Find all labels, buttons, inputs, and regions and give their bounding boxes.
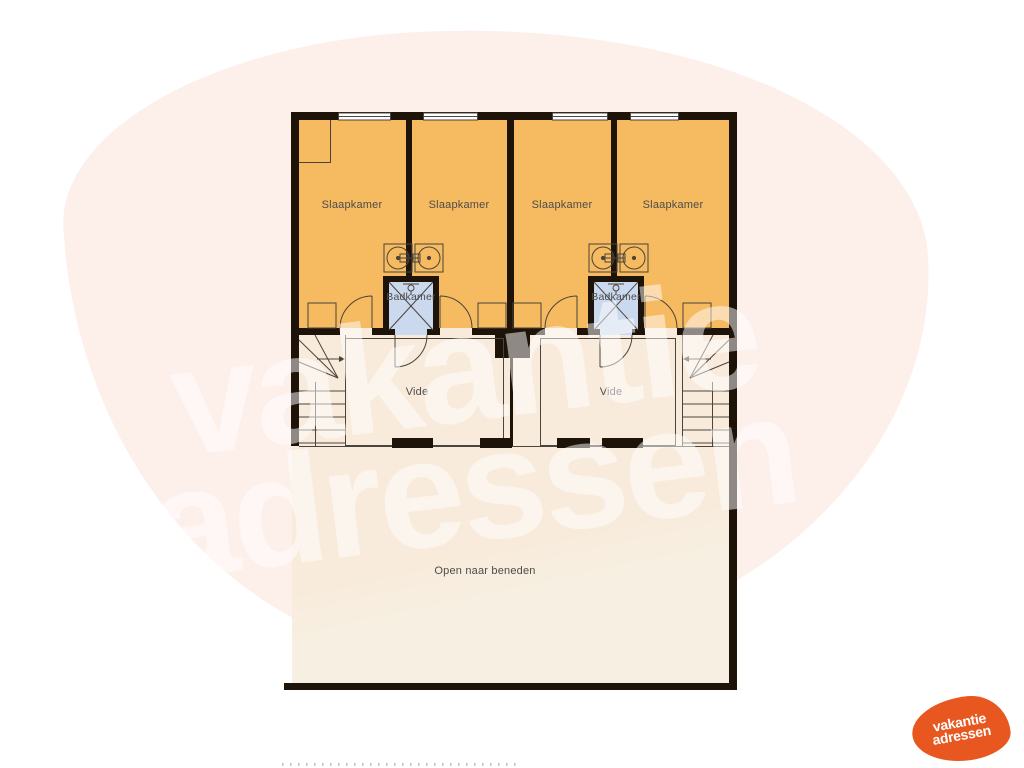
door-arc <box>308 296 711 328</box>
floorplan-page: Slaapkamer Slaapkamer Slaapkamer Slaapka… <box>0 0 1024 768</box>
staircase <box>299 335 346 446</box>
window <box>339 113 679 120</box>
room-label-bedroom-1: Slaapkamer <box>322 199 383 211</box>
vide-bottom-walls <box>299 358 729 448</box>
logo-text: vakantie adressen <box>930 711 993 747</box>
room-label-bathroom-2: Badkamer <box>591 291 640 303</box>
cutoff-caption-fragment <box>282 763 518 766</box>
room-label-open-area: Open naar beneden <box>434 565 535 577</box>
door-arc <box>395 335 632 367</box>
staircase <box>683 335 730 446</box>
shaft-outline <box>299 120 331 163</box>
floorplan: Slaapkamer Slaapkamer Slaapkamer Slaapka… <box>291 112 737 690</box>
stair-direction-arrow-icon <box>683 356 689 362</box>
room-label-vide-1: Vide <box>406 386 429 398</box>
stair-direction-arrow-icon <box>339 356 345 362</box>
shower-icon <box>389 282 433 330</box>
room-label-bedroom-2: Slaapkamer <box>429 199 490 211</box>
vakantieadressen-logo: vakantie adressen <box>909 692 1013 766</box>
room-label-bedroom-4: Slaapkamer <box>643 199 704 211</box>
room-label-vide-2: Vide <box>600 386 623 398</box>
washbasin-icon <box>589 244 648 272</box>
shower-icon <box>594 282 638 330</box>
room-label-bathroom-1: Badkamer <box>386 291 435 303</box>
washbasin-icon <box>384 244 443 272</box>
room-label-bedroom-3: Slaapkamer <box>532 199 593 211</box>
